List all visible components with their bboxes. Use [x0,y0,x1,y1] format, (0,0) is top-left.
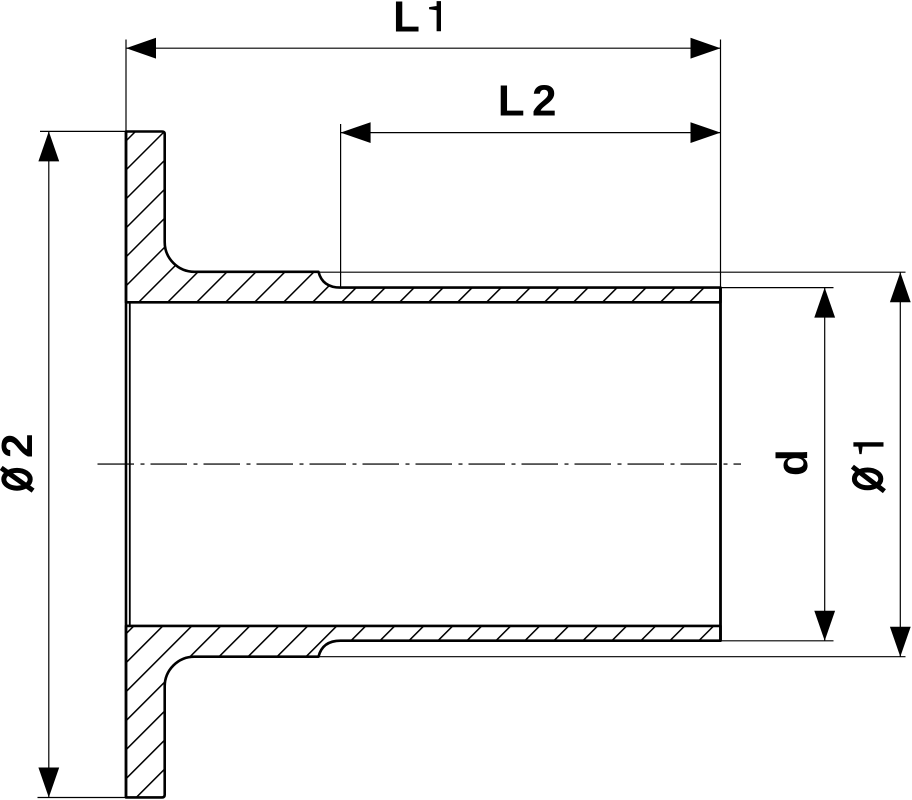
svg-text:d: d [768,449,817,476]
svg-text:2: 2 [0,434,42,458]
svg-text:L: L [498,77,525,126]
svg-text:2: 2 [532,77,556,126]
svg-text:L: L [393,0,420,41]
